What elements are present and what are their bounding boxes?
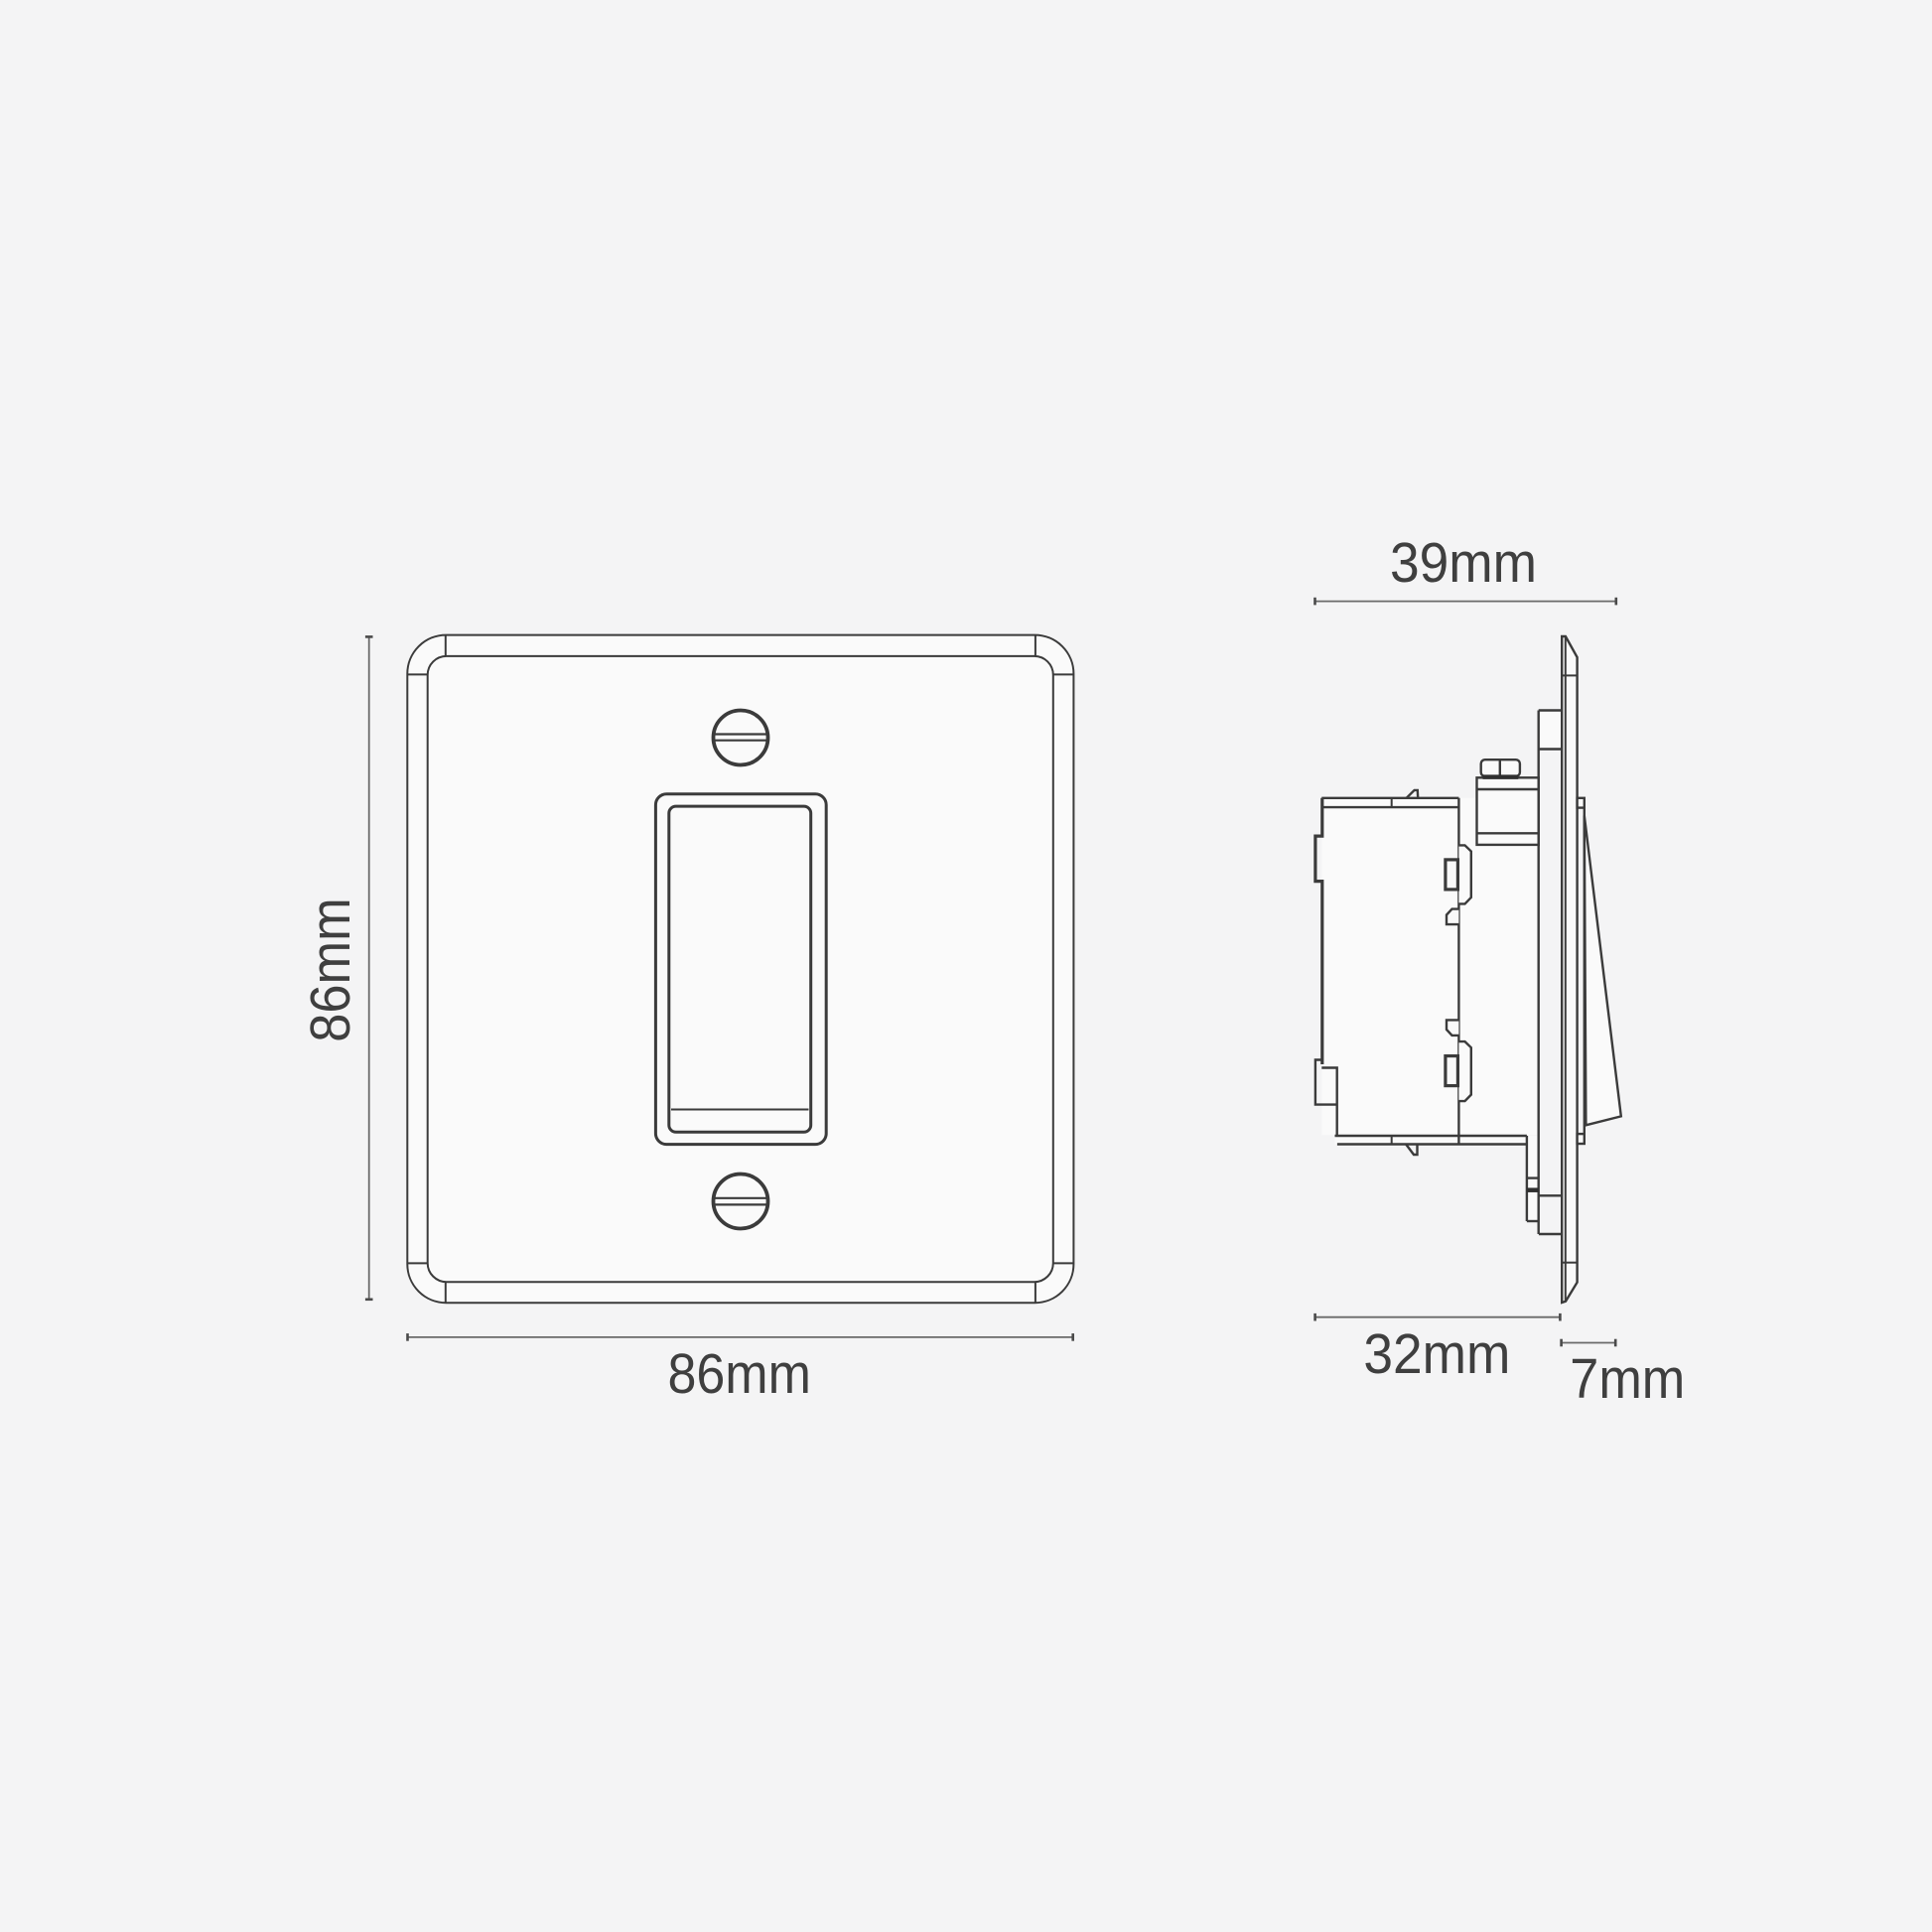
svg-text:86mm: 86mm (667, 1342, 811, 1405)
svg-text:32mm: 32mm (1363, 1322, 1510, 1385)
svg-text:39mm: 39mm (1390, 531, 1537, 594)
svg-text:7mm: 7mm (1570, 1347, 1685, 1410)
svg-text:86mm: 86mm (299, 897, 361, 1042)
